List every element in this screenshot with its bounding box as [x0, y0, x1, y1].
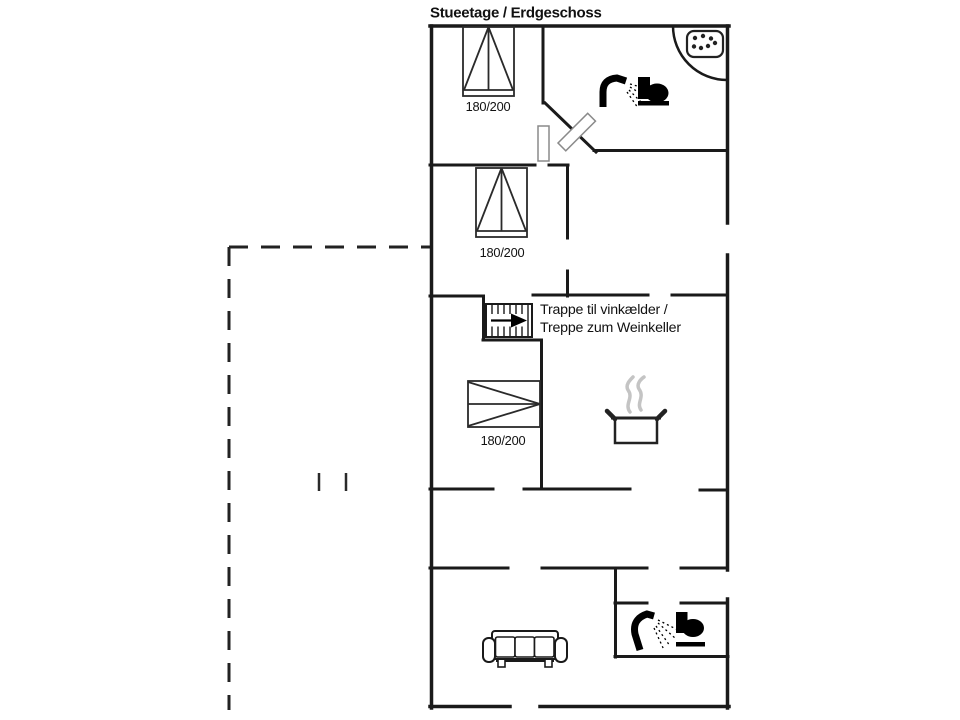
bed-size-label: 180/200: [481, 433, 526, 448]
toilet-icon: [676, 612, 705, 647]
bed-icon: [468, 381, 540, 427]
bed-icon: [476, 168, 527, 237]
cooking-pot-icon: [607, 377, 665, 443]
stairs-icon: [486, 304, 532, 337]
sofa-icon: [483, 631, 567, 667]
whirlpool-icon: [687, 31, 723, 57]
shower-icon: [635, 614, 679, 650]
plan-title: Stueetage / Erdgeschoss: [430, 5, 602, 22]
stairs-label-line1: Trappe til vinkælder /: [540, 302, 668, 318]
stairs-label-line2: Treppe zum Weinkeller: [540, 320, 681, 336]
door-leaves: [538, 113, 595, 161]
interior-walls: [430, 26, 728, 657]
terrace-step-marks: [319, 473, 346, 491]
terrace-outline: [229, 247, 430, 710]
bed-icon: [463, 27, 514, 96]
bed-size-label: 180/200: [466, 99, 511, 114]
floor-plan: Stueetage / Erdgeschoss: [0, 0, 960, 720]
bed-size-label: 180/200: [480, 245, 525, 260]
steam: [627, 377, 644, 412]
toilet-icon: [638, 77, 669, 106]
door-leaf-bedroom1: [538, 126, 549, 161]
